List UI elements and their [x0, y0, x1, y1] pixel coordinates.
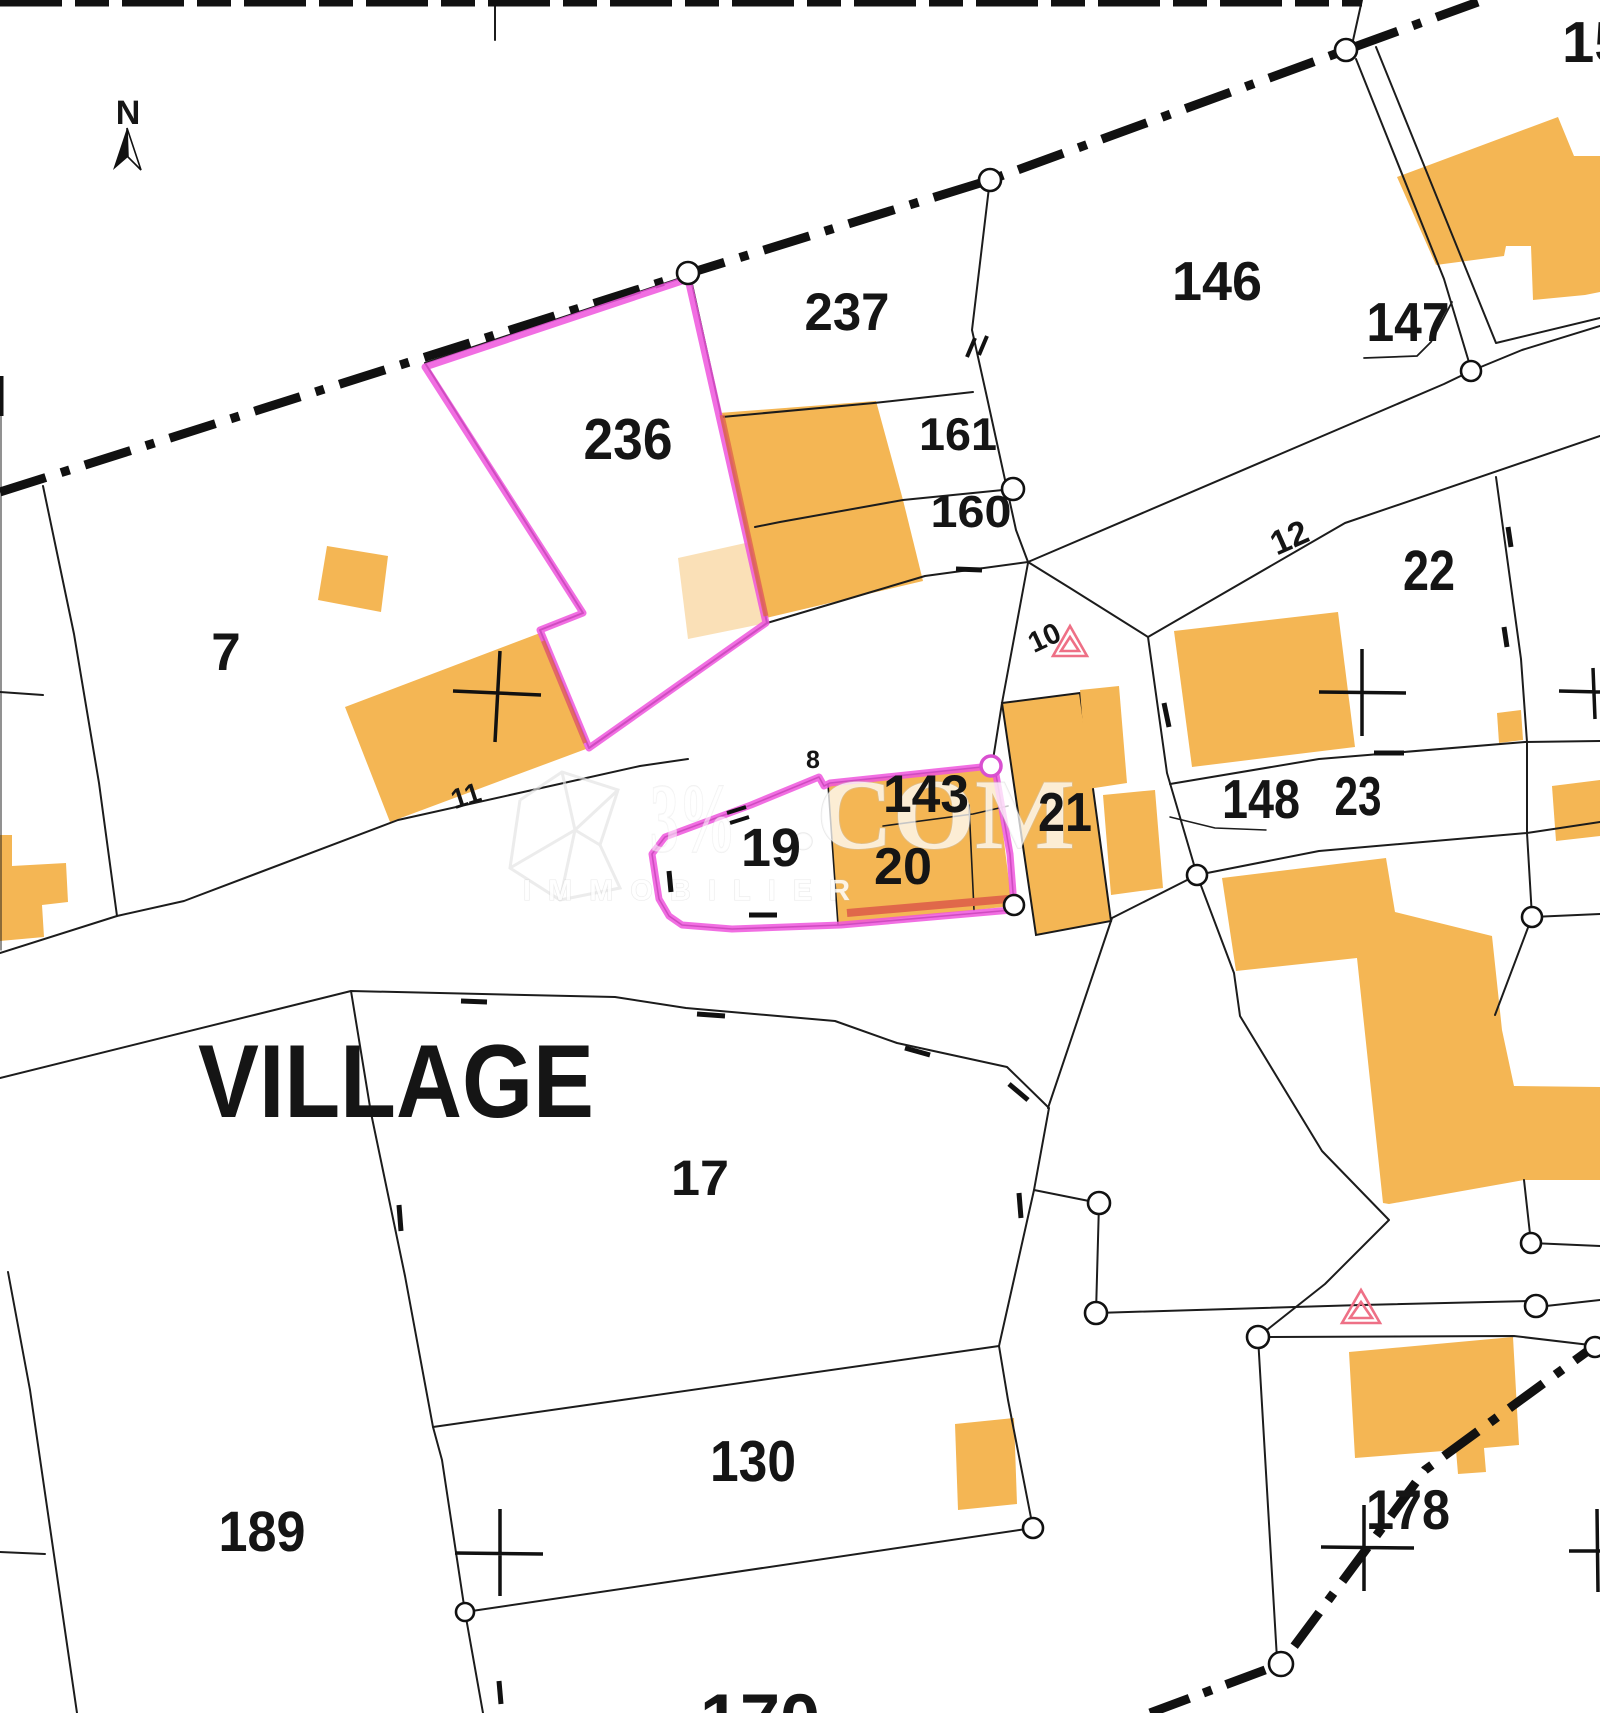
svg-text:3%: 3%	[650, 765, 736, 873]
svg-text:161: 161	[919, 408, 997, 460]
svg-text:19: 19	[741, 818, 801, 878]
svg-text:189: 189	[219, 1500, 306, 1564]
svg-text:178: 178	[1366, 1478, 1450, 1541]
svg-text:170: 170	[700, 1680, 820, 1713]
svg-text:20: 20	[874, 838, 932, 896]
svg-text:148: 148	[1222, 768, 1300, 830]
svg-text:147: 147	[1367, 291, 1450, 353]
svg-text:130: 130	[710, 1429, 796, 1494]
svg-text:VILLAGE: VILLAGE	[198, 1024, 594, 1140]
svg-text:237: 237	[805, 283, 890, 342]
svg-text:143: 143	[883, 765, 969, 824]
svg-text:236: 236	[584, 407, 673, 472]
svg-text:15: 15	[1562, 10, 1600, 75]
svg-text:IMMOBILIER: IMMOBILIER	[523, 875, 867, 907]
svg-text:7: 7	[211, 623, 240, 682]
svg-text:22: 22	[1403, 539, 1455, 603]
svg-text:8: 8	[806, 746, 820, 774]
svg-text:146: 146	[1172, 250, 1262, 312]
svg-text:23: 23	[1335, 765, 1382, 827]
svg-text:17: 17	[671, 1150, 729, 1206]
svg-text:N: N	[116, 94, 141, 132]
svg-text:21: 21	[1038, 781, 1092, 843]
svg-text:160: 160	[931, 486, 1012, 537]
